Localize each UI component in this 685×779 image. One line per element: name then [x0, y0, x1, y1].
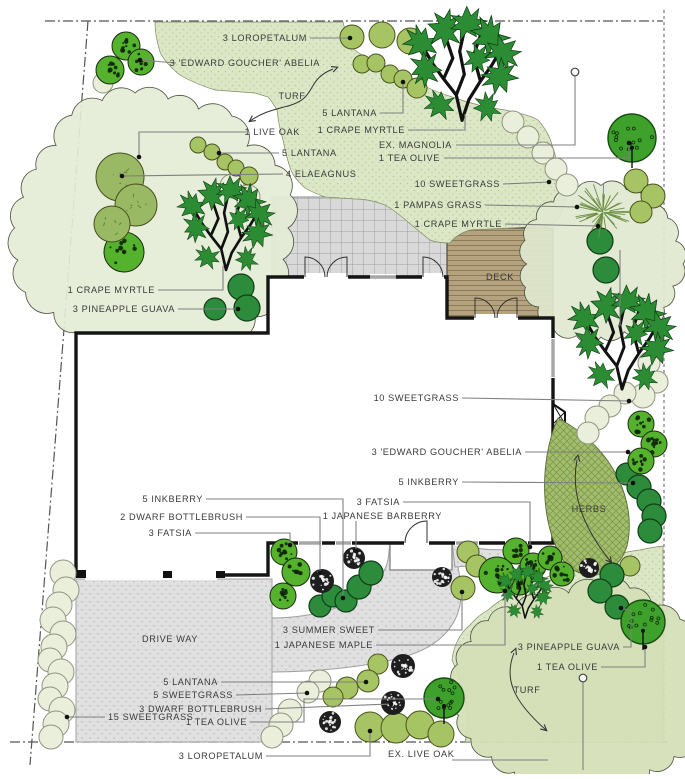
- label-ex-live-oak: EX. LIVE OAK: [388, 749, 455, 759]
- leader-dot: [627, 141, 632, 146]
- plant-shrub-mottled: [270, 583, 296, 609]
- label-elaeagnus: 4 ELAEAGNUS: [286, 169, 356, 179]
- plant-speckled-dark: [432, 567, 452, 587]
- plant-shrub-medium: [323, 687, 343, 707]
- label-pineapple-guava-left: 3 PINEAPPLE GUAVA: [73, 304, 176, 314]
- label-sweetgrass-top: 10 SWEETGRASS: [415, 179, 500, 189]
- leader-dot: [626, 450, 631, 455]
- plant-speckled-dark: [391, 654, 415, 678]
- leader-dot: [120, 174, 125, 179]
- plant-shrub-dark: [638, 519, 662, 543]
- garage-opening: [85, 570, 217, 580]
- leader-dot: [460, 590, 465, 595]
- label-sweetgrass-mid: 10 SWEETGRASS: [374, 393, 459, 403]
- label-lantana-bottom: 5 LANTANA: [163, 677, 218, 687]
- label-driveway: DRIVE WAY: [142, 634, 198, 644]
- label-loropetalum-top: 3 LOROPETALUM: [223, 33, 307, 43]
- leader-dot: [217, 151, 222, 156]
- label-inkberry-right: 5 INKBERRY: [399, 477, 459, 487]
- leader-circle-marker: [571, 68, 579, 76]
- plant-sweetgrass: [39, 725, 63, 749]
- leader-dot: [288, 543, 293, 548]
- leader-dot: [318, 571, 323, 576]
- leader-dot: [368, 729, 373, 734]
- label-lantana-top: 5 LANTANA: [322, 108, 377, 118]
- label-pineapple-guava-br: 3 PINEAPPLE GUAVA: [518, 642, 621, 652]
- plant-shrub-medium: [630, 201, 652, 223]
- leader-dot: [389, 702, 394, 707]
- leader-dot: [436, 697, 441, 702]
- plant-tea-olive: [608, 114, 656, 168]
- label-tea-olive-br: 1 TEA OLIVE: [537, 662, 598, 672]
- label-tea-olive-bottom: 1 TEA OLIVE: [186, 717, 247, 727]
- label-lantana-left: 5 LANTANA: [282, 148, 337, 158]
- label-inkberry-left: 5 INKBERRY: [143, 494, 203, 504]
- label-deck: DECK: [486, 272, 514, 282]
- plant-sweetgrass: [261, 726, 283, 748]
- label-japanese-maple: 1 JAPANESE MAPLE: [275, 640, 373, 650]
- plant-shrub-medium: [190, 137, 206, 153]
- plant-shrub-medium: [428, 721, 454, 747]
- leader-dot: [503, 589, 508, 594]
- plant-shrub-mottled: [96, 56, 124, 84]
- plant-elaeagnus: [94, 206, 130, 242]
- label-fatsia-mid: 3 FATSIA: [357, 497, 401, 507]
- label-summer-sweet: 3 SUMMER SWEET: [283, 625, 375, 635]
- leader-dot: [619, 606, 624, 611]
- label-crape-myrtle-left: 1 CRAPE MYRTLE: [68, 285, 155, 295]
- leader-dot: [348, 36, 353, 41]
- label-turf-bottom: TURF: [514, 685, 541, 695]
- plant-shrub-medium: [369, 22, 395, 48]
- garage-post-left: [76, 570, 86, 578]
- label-abelia-mid: 3 'EDWARD GOUCHER' ABELIA: [372, 447, 523, 457]
- landscape-plan: 3 LOROPETALUM3 'EDWARD GOUCHER' ABELIATU…: [0, 0, 685, 774]
- label-turf-top: TURF: [279, 91, 306, 101]
- label-loropetalum-bottom: 3 LOROPETALUM: [179, 751, 263, 761]
- leader-dot: [341, 596, 346, 601]
- label-japanese-barberry: 1 JAPANESE BARBERRY: [323, 511, 442, 521]
- leader-dot: [627, 399, 632, 404]
- label-ex-magnolia: EX. MAGNOLIA: [379, 140, 452, 150]
- label-sweetgrass-5: 5 SWEETGRASS: [153, 690, 233, 700]
- leader-dot: [65, 715, 70, 720]
- plant-shrub-medium: [451, 576, 475, 600]
- plant-sweetgrass: [556, 174, 578, 196]
- leader-dot: [596, 224, 601, 229]
- label-live-oak: 1 LIVE OAK: [244, 127, 300, 137]
- plan-canvas: 3 LOROPETALUM3 'EDWARD GOUCHER' ABELIATU…: [0, 0, 685, 774]
- plant-shrub-mottled: [628, 448, 654, 474]
- plant-speckled-dark: [579, 558, 599, 578]
- label-abelia-top: 3 'EDWARD GOUCHER' ABELIA: [170, 58, 321, 68]
- label-pampas-grass: 1 PAMPAS GRASS: [394, 200, 482, 210]
- plant-shrub-medium: [240, 167, 258, 185]
- leader-dot: [138, 58, 143, 63]
- leader-dot: [401, 80, 406, 85]
- label-crape-myrtle-top: 1 CRAPE MYRTLE: [318, 125, 405, 135]
- plant-shrub-mottled: [550, 562, 574, 586]
- garage-post-right: [216, 571, 225, 578]
- plant-shrub-mottled: [282, 558, 310, 586]
- leader-circle-marker: [579, 674, 587, 682]
- plant-shrub-dark: [593, 257, 619, 283]
- leader-dot: [643, 645, 648, 650]
- leader-dot: [575, 205, 580, 210]
- front-porch: [390, 543, 452, 570]
- plant-sweetgrass: [577, 422, 599, 444]
- leader-dot: [354, 549, 359, 554]
- leader-dot: [364, 680, 369, 685]
- leader-dot: [547, 180, 552, 185]
- leader-dot: [528, 545, 533, 550]
- label-sweetgrass-15: 15 SWEETGRASS: [108, 712, 193, 722]
- leader-dot: [305, 691, 310, 696]
- label-dwarf-bottlebrush-left: 2 DWARF BOTTLEBRUSH: [120, 512, 243, 522]
- label-herbs: HERBS: [572, 504, 607, 514]
- label-fatsia-left: 3 FATSIA: [149, 528, 193, 538]
- plant-speckled-dark: [319, 711, 341, 733]
- label-tea-olive-top: 1 TEA OLIVE: [379, 153, 440, 163]
- label-crape-myrtle-right: 1 CRAPE MYRTLE: [415, 219, 502, 229]
- leader-dot: [236, 307, 241, 312]
- leader-dot: [631, 481, 636, 486]
- garage-post-mid: [163, 571, 172, 578]
- leader-dot: [137, 155, 142, 160]
